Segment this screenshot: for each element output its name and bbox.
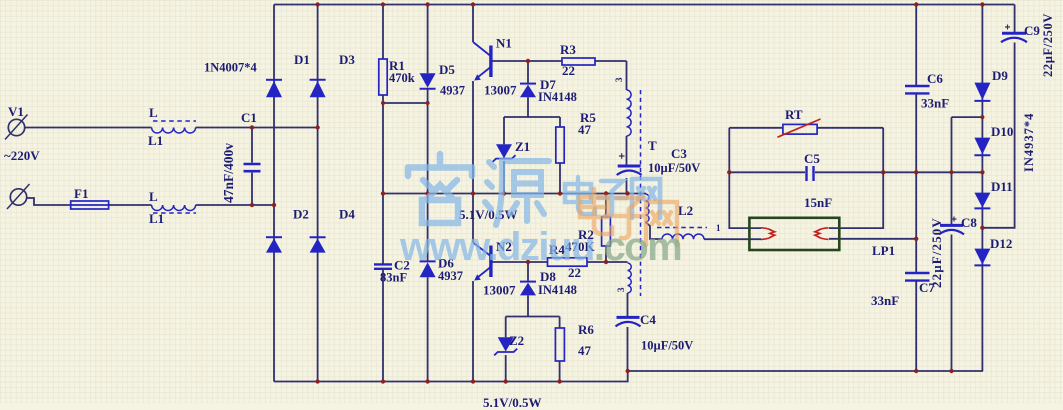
svg-text:D4: D4 (339, 207, 355, 222)
svg-text:IN4148: IN4148 (538, 90, 577, 104)
svg-text:47: 47 (578, 343, 592, 358)
svg-text:N1: N1 (496, 36, 512, 51)
svg-text:Z2: Z2 (509, 333, 524, 348)
svg-text:22µF/250V: 22µF/250V (929, 217, 944, 288)
svg-text:47nF/400v: 47nF/400v (221, 143, 236, 203)
svg-text:10µF/50V: 10µF/50V (641, 339, 693, 353)
svg-text:47: 47 (578, 122, 592, 137)
svg-text:D10: D10 (991, 124, 1013, 139)
svg-text:3: 3 (614, 77, 624, 82)
svg-text:13007: 13007 (484, 83, 517, 98)
svg-text:33nF: 33nF (921, 96, 949, 111)
svg-text:D12: D12 (990, 236, 1012, 251)
svg-text:22µF/250V: 22µF/250V (1041, 13, 1055, 77)
svg-text:1: 1 (716, 223, 721, 233)
svg-text:RT: RT (785, 107, 803, 122)
svg-text:L: L (149, 189, 158, 204)
svg-text:V1: V1 (8, 104, 24, 119)
svg-text:D9: D9 (992, 68, 1008, 83)
svg-text:LP1: LP1 (872, 243, 895, 258)
svg-text:D2: D2 (293, 207, 309, 222)
svg-text:3: 3 (616, 287, 626, 292)
svg-text:15nF: 15nF (804, 195, 832, 210)
svg-text:1N4007*4: 1N4007*4 (204, 61, 258, 75)
svg-text:L2: L2 (678, 203, 693, 218)
svg-text:IN4148: IN4148 (538, 283, 577, 297)
svg-text:D5: D5 (439, 62, 455, 77)
svg-text:D3: D3 (339, 52, 355, 67)
svg-text:R6: R6 (578, 322, 594, 337)
svg-text:F1: F1 (74, 186, 88, 201)
svg-text:470k: 470k (389, 71, 415, 85)
svg-text:13007: 13007 (483, 283, 516, 298)
svg-text:4937: 4937 (438, 269, 463, 283)
svg-text:C5: C5 (804, 151, 820, 166)
svg-text:C1: C1 (241, 110, 257, 125)
svg-text:D1: D1 (294, 52, 310, 67)
svg-text:10µF/50V: 10µF/50V (648, 161, 700, 175)
svg-text:C6: C6 (927, 71, 943, 86)
svg-text:5.1V/0.5W: 5.1V/0.5W (483, 395, 542, 410)
svg-text:C3: C3 (671, 146, 687, 161)
svg-text:22: 22 (562, 63, 575, 78)
svg-text:D11: D11 (991, 179, 1013, 194)
svg-text:Z1: Z1 (515, 139, 530, 154)
svg-text:L1: L1 (148, 133, 163, 148)
svg-text:33nF: 33nF (871, 293, 899, 308)
svg-text:L1: L1 (149, 211, 164, 226)
svg-text:L: L (149, 105, 158, 120)
svg-text:83nF: 83nF (380, 271, 407, 285)
svg-text:T: T (648, 138, 657, 153)
svg-text:IN4937*4: IN4937*4 (1022, 113, 1036, 172)
svg-text:C9: C9 (1024, 23, 1040, 38)
svg-text:www.dziuu.com: www.dziuu.com (399, 225, 681, 269)
svg-text:4937: 4937 (440, 84, 465, 98)
svg-text:C8: C8 (961, 215, 977, 230)
svg-text:~220V: ~220V (4, 148, 40, 163)
svg-text:C4: C4 (640, 312, 656, 327)
svg-text:R3: R3 (560, 42, 576, 57)
svg-text:D8: D8 (540, 269, 556, 284)
